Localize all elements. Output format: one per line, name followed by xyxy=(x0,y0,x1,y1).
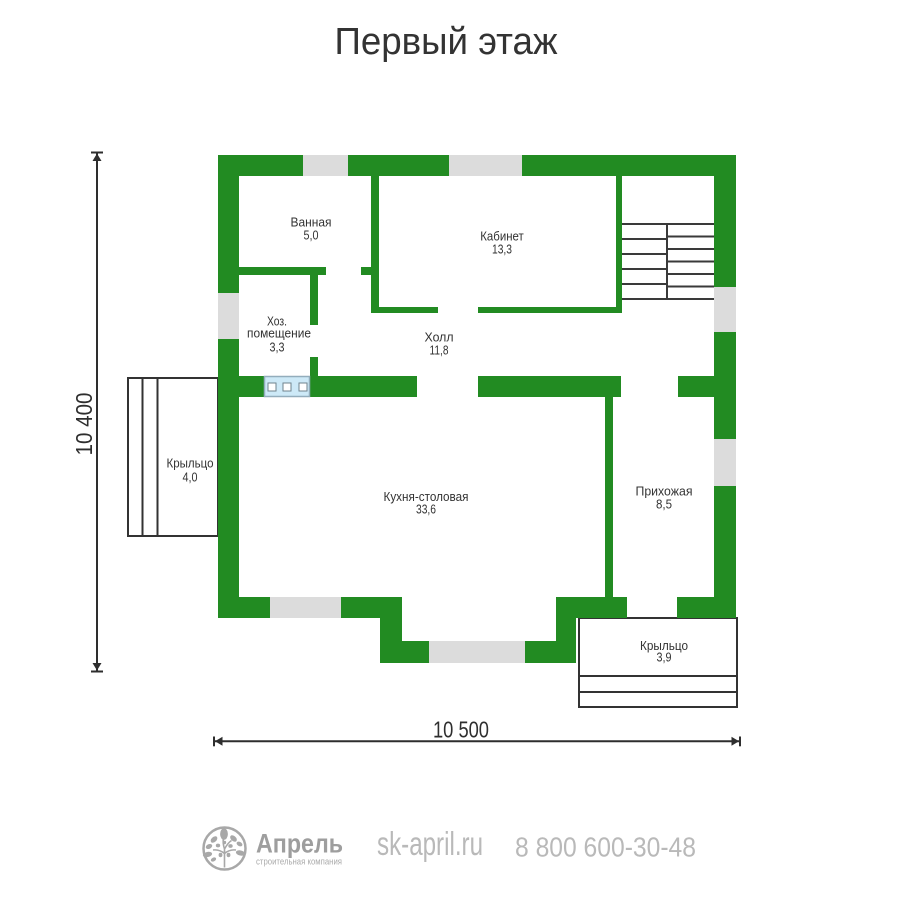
svg-text:11,8: 11,8 xyxy=(430,343,449,358)
svg-text:строительная компания: строительная компания xyxy=(256,857,342,867)
svg-text:Первый этаж: Первый этаж xyxy=(335,21,559,63)
svg-text:sk-april.ru: sk-april.ru xyxy=(377,825,483,862)
svg-text:помещение: помещение xyxy=(247,326,311,341)
svg-text:Крыльцо: Крыльцо xyxy=(167,456,214,471)
svg-text:10 500: 10 500 xyxy=(433,717,489,743)
svg-text:8,5: 8,5 xyxy=(656,497,672,512)
svg-text:3,3: 3,3 xyxy=(270,340,285,355)
svg-text:3,9: 3,9 xyxy=(657,650,672,665)
svg-text:13,3: 13,3 xyxy=(492,242,512,257)
svg-text:33,6: 33,6 xyxy=(416,502,436,517)
svg-text:10 400: 10 400 xyxy=(71,393,97,456)
svg-text:8 800 600-30-48: 8 800 600-30-48 xyxy=(515,832,696,863)
svg-text:4,0: 4,0 xyxy=(183,470,198,485)
svg-text:Апрель: Апрель xyxy=(256,829,343,859)
svg-text:5,0: 5,0 xyxy=(304,228,319,243)
